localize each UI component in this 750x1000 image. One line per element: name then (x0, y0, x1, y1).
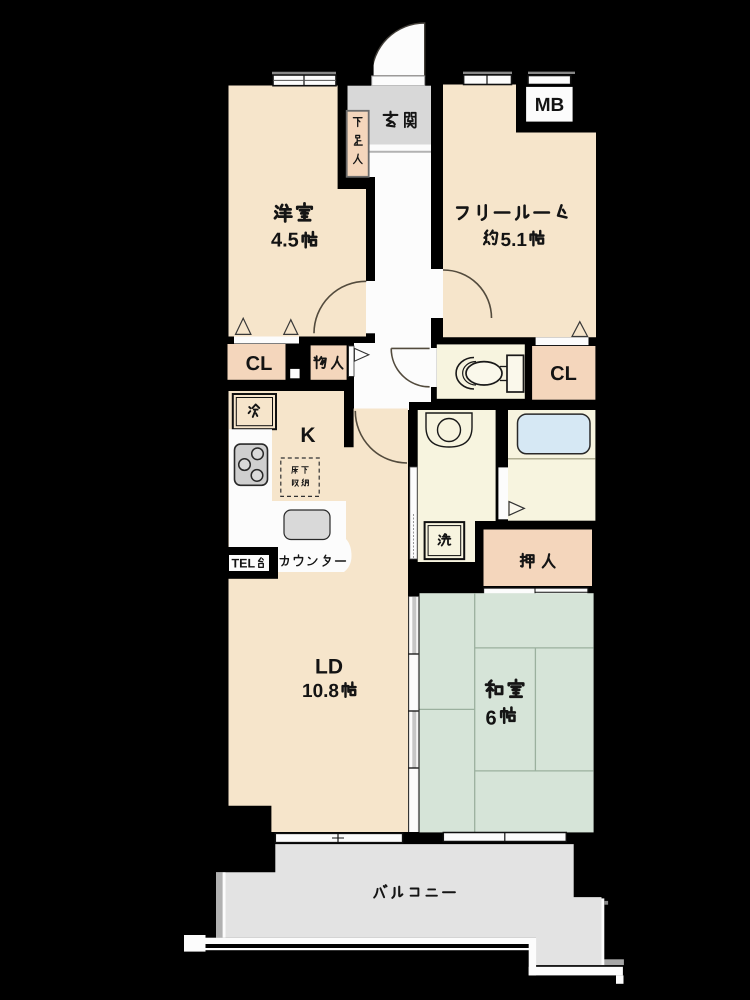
svg-text:6: 6 (486, 708, 497, 730)
svg-text:K: K (300, 424, 315, 447)
svg-text:MB: MB (535, 95, 565, 116)
svg-text:CL: CL (246, 353, 273, 375)
svg-text:4.5: 4.5 (271, 230, 299, 252)
svg-text:TEL: TEL (232, 557, 256, 571)
svg-text:10.8: 10.8 (302, 681, 339, 702)
svg-text:LD: LD (315, 656, 343, 679)
svg-text:5.1: 5.1 (501, 230, 528, 251)
svg-text:CL: CL (550, 363, 577, 385)
